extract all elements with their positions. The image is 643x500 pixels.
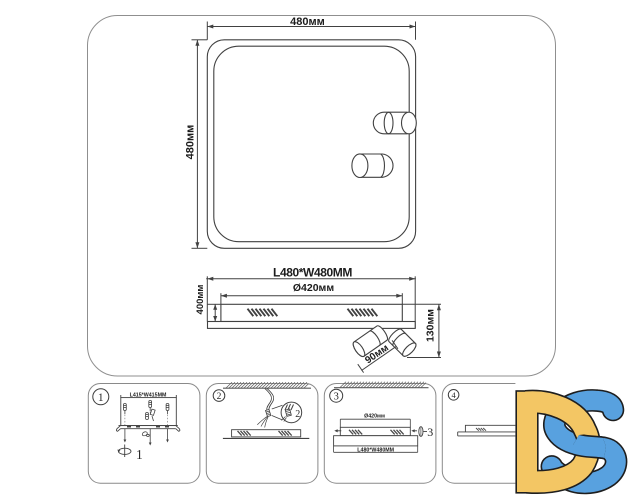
svg-text:L480*W480MM: L480*W480MM — [273, 266, 352, 280]
svg-text:480мм: 480мм — [185, 125, 197, 160]
svg-text:1: 1 — [136, 447, 143, 462]
svg-text:480мм: 480мм — [290, 16, 325, 28]
svg-text:Ø420мм: Ø420мм — [364, 414, 385, 420]
svg-text:4: 4 — [451, 390, 456, 400]
svg-text:3: 3 — [334, 391, 339, 402]
svg-text:1: 1 — [98, 392, 104, 404]
svg-text:2: 2 — [295, 409, 300, 420]
svg-text:2: 2 — [217, 392, 222, 402]
svg-text:Ø420мм: Ø420мм — [293, 282, 334, 294]
svg-text:L480*W480MM: L480*W480MM — [357, 447, 394, 453]
svg-text:400мм: 400мм — [195, 285, 206, 315]
svg-text:3: 3 — [427, 425, 433, 439]
svg-text:130мм: 130мм — [425, 309, 437, 342]
